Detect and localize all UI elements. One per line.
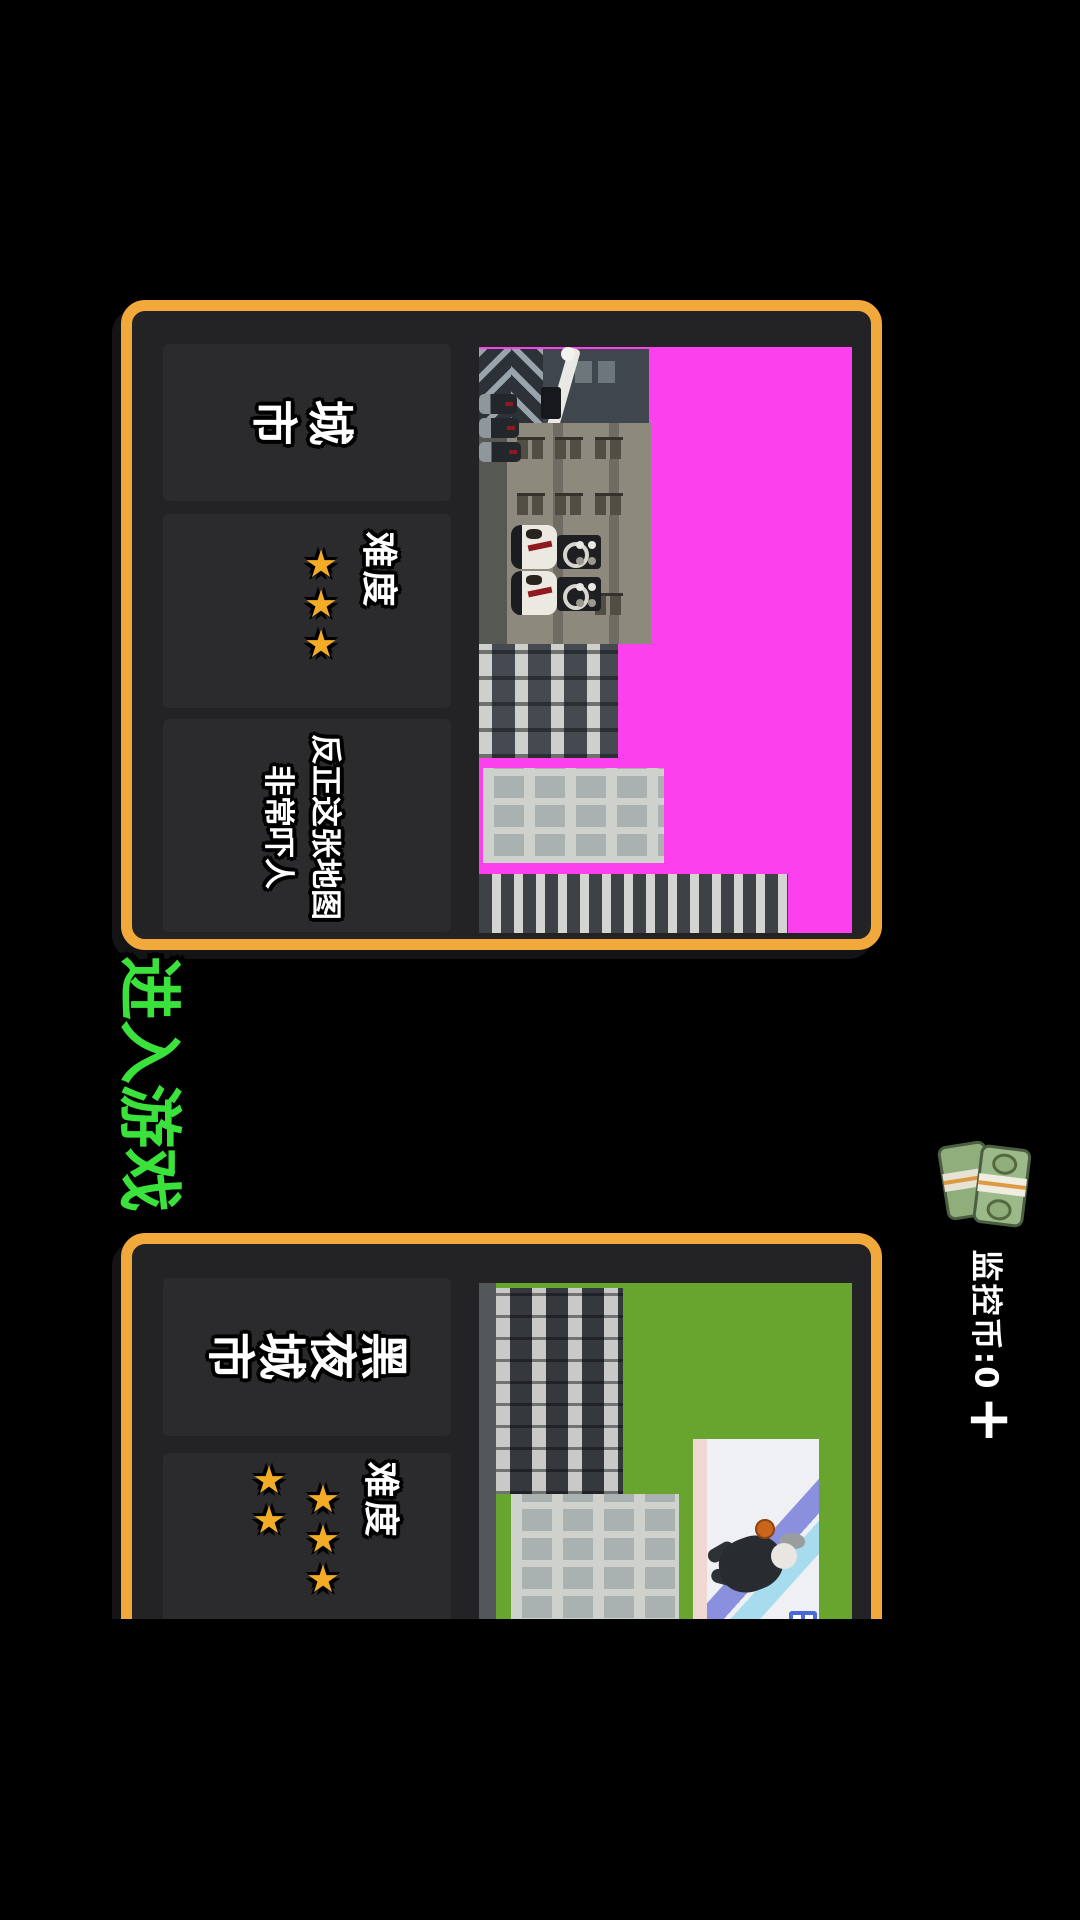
currency-balance: 监控币:0 xyxy=(966,1249,1012,1390)
difficulty-label-rotator: 难度 xyxy=(361,1460,408,1541)
map-title-rotator: 城市 xyxy=(244,400,361,445)
window-pair xyxy=(595,493,623,515)
window-pair xyxy=(517,437,545,459)
masked-figure-sprite xyxy=(511,571,557,615)
building-windows xyxy=(575,361,617,383)
difficulty-panel: 难度 ★★★ ★★ xyxy=(163,1453,451,1619)
speaker-sprite xyxy=(557,535,601,569)
map-title-panel: 城市 xyxy=(163,344,451,501)
map-title-rotator: 黑夜城市 xyxy=(203,1329,409,1383)
game-viewport: 城市 难度 ★★★ 反正这张地图非常吓人 xyxy=(0,0,1080,1619)
difficulty-stars-main-icon: ★★★ xyxy=(303,1479,343,1599)
letterbox-bottom xyxy=(0,1619,1080,1920)
soldier-sprite xyxy=(479,394,517,414)
building-windows-grid xyxy=(483,768,664,863)
building-windows-grid xyxy=(511,1494,679,1619)
money-stack-icon xyxy=(936,1128,1037,1232)
difficulty-label: 难度 xyxy=(357,531,409,609)
difficulty-panel: 难度 ★★★ xyxy=(163,514,451,708)
difficulty-stars-extra-icon: ★★ xyxy=(249,1460,289,1540)
difficulty-stars-icon: ★★★ xyxy=(301,544,341,664)
map-description: 反正这张地图非常吓人 xyxy=(254,731,348,923)
window-pair xyxy=(517,493,545,515)
window-pair xyxy=(555,493,583,515)
crane-cab xyxy=(541,387,561,419)
enter-game-button[interactable]: 进入游戏 xyxy=(108,956,200,1212)
window-pair xyxy=(595,437,623,459)
map-card-city[interactable]: 城市 难度 ★★★ 反正这张地图非常吓人 xyxy=(121,300,882,950)
crosswalk xyxy=(479,874,788,933)
map-preview-night-city xyxy=(479,1283,852,1619)
masked-figure-sprite xyxy=(511,525,557,569)
window-pair xyxy=(555,437,583,459)
add-currency-button[interactable]: + xyxy=(961,1392,1017,1444)
map-title: 黑夜城市 xyxy=(204,1331,408,1381)
building-facade xyxy=(479,644,618,758)
currency-label-rotator: 监控币:0 xyxy=(964,1244,1014,1397)
billboard-caption-box xyxy=(789,1611,817,1619)
enter-game-rotator: 进入游戏 xyxy=(111,956,197,1212)
road-strip xyxy=(479,1283,496,1619)
soldier-sprite xyxy=(479,442,521,462)
crane-tip xyxy=(561,347,575,361)
figure-mask xyxy=(771,1543,797,1569)
billboard xyxy=(693,1439,819,1619)
description-rotator: 反正这张地图非常吓人 xyxy=(252,731,350,923)
chevron-pattern xyxy=(511,349,543,425)
map-preview-city xyxy=(479,347,852,933)
map-title: 城市 xyxy=(247,400,359,446)
description-panel: 反正这张地图非常吓人 xyxy=(163,719,451,932)
map-card-night-city[interactable]: 黑夜城市 难度 ★★★ ★★ xyxy=(121,1233,882,1619)
map-title-panel: 黑夜城市 xyxy=(163,1278,451,1436)
difficulty-label-rotator: 难度 xyxy=(359,530,406,611)
skyscraper xyxy=(496,1288,623,1494)
soldier-sprite xyxy=(479,418,519,438)
speaker-sprite xyxy=(557,577,601,611)
difficulty-label: 难度 xyxy=(359,1461,411,1539)
billboard-edge xyxy=(693,1439,707,1619)
screen: 城市 难度 ★★★ 反正这张地图非常吓人 xyxy=(0,0,1080,1920)
basketball-sprite xyxy=(755,1519,775,1539)
